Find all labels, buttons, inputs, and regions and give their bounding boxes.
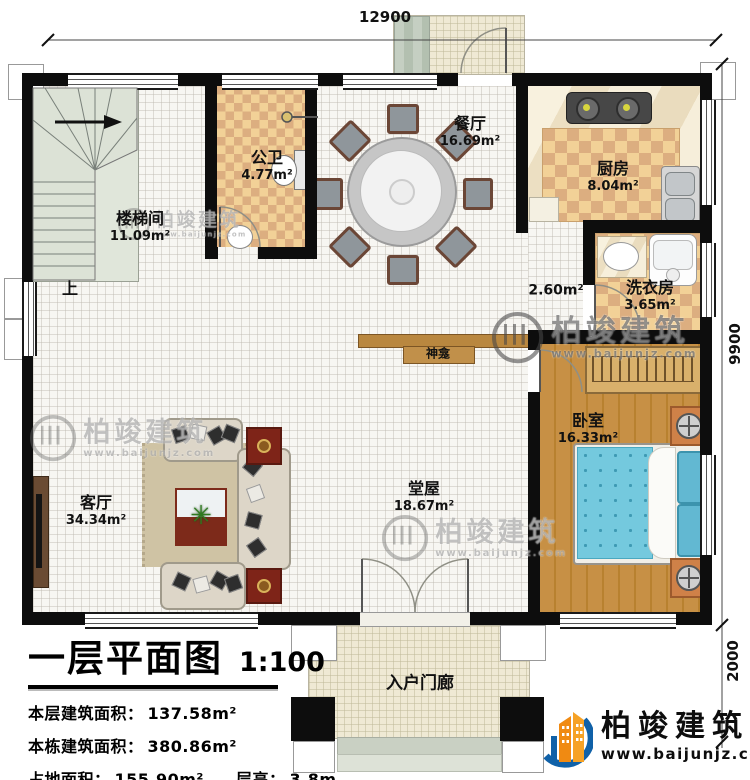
room-label-hall: 堂屋18.67m² <box>394 479 454 515</box>
wall <box>676 612 712 625</box>
dining-chair <box>387 104 419 134</box>
brand-logo: 柏竣建筑 www.baijunjz.com <box>537 700 750 772</box>
wall <box>528 330 540 350</box>
dimension-side: 9900 <box>726 314 744 374</box>
stove-burner-dot <box>583 104 590 111</box>
dining-chair <box>313 178 343 210</box>
footprint-line: 占地面积：155.90m² 层高：3.8m <box>28 766 337 780</box>
brand-logo-icon <box>537 700 593 772</box>
dimension-top: 12900 <box>350 8 420 26</box>
floor-area-line: 本层建筑面积：137.58m² <box>28 700 337 724</box>
porch-pilaster <box>500 625 546 661</box>
wall <box>512 73 712 86</box>
side-table-top <box>246 427 282 465</box>
wall <box>318 73 343 86</box>
wall <box>528 392 540 612</box>
floor-plan-page: ✳ <box>0 0 750 780</box>
wardrobe-hangers <box>592 356 694 382</box>
window <box>343 73 437 90</box>
sofa-right <box>237 448 291 570</box>
vestibule-floor <box>528 220 583 330</box>
brand-name: 柏竣建筑 <box>601 710 750 743</box>
washing-machine-lid <box>653 240 693 270</box>
bed-mattress <box>577 447 653 559</box>
wall <box>470 612 560 625</box>
room-label-vestibule: 2.60m² <box>528 282 583 300</box>
wall <box>205 86 217 259</box>
dimension-porch: 2000 <box>724 631 742 691</box>
porch-step-2 <box>337 754 502 772</box>
wall <box>700 73 712 100</box>
room-label-dining: 餐厅16.69m² <box>440 114 500 150</box>
laundry-sink <box>603 242 639 271</box>
bathroom-sink <box>227 225 253 249</box>
room-label-bedroom: 卧室16.33m² <box>558 411 618 447</box>
bed-sheet <box>648 447 676 559</box>
wall <box>528 330 712 344</box>
stairs-up-label: 上 <box>62 279 78 299</box>
window <box>68 73 178 90</box>
window <box>560 612 676 629</box>
kitchen-appliance <box>529 197 559 222</box>
title-underline <box>28 685 278 691</box>
kitchen-sink-basin <box>665 172 695 196</box>
plant-icon: ✳ <box>190 501 212 531</box>
kitchen-sink-basin <box>665 198 695 222</box>
room-label-porch: 入户门廊 <box>386 673 454 694</box>
room-label-bathroom: 公卫4.77m² <box>241 148 292 184</box>
wall <box>178 73 222 86</box>
sofa-bottom <box>160 562 246 610</box>
window <box>85 612 258 629</box>
wall <box>22 612 85 625</box>
wall <box>258 247 317 259</box>
window <box>222 73 318 90</box>
room-label-laundry: 洗衣房3.65m² <box>624 278 675 314</box>
coffee-table: ✳ <box>175 488 227 546</box>
room-label-living: 客厅34.34m² <box>66 493 126 529</box>
wall <box>437 73 458 86</box>
wall <box>258 612 360 625</box>
wall <box>22 73 33 282</box>
wall <box>305 86 317 259</box>
wall <box>516 86 528 233</box>
stairs <box>33 88 139 282</box>
plan-scale: 1:100 <box>239 647 325 678</box>
stove-burner-dot <box>623 104 630 111</box>
tv-screen <box>36 494 42 568</box>
title-block: 一层平面图 1:100 本层建筑面积：137.58m² 本栋建筑面积：380.8… <box>28 628 337 780</box>
window <box>700 100 716 205</box>
sofa-top <box>163 418 243 462</box>
dining-table-center <box>389 179 415 205</box>
plan-title: 一层平面图 <box>28 628 223 682</box>
room-label-kitchen: 厨房8.04m² <box>587 159 638 195</box>
window <box>22 282 37 356</box>
hall-door-sill <box>360 612 470 627</box>
window <box>700 243 716 317</box>
building-area-line: 本栋建筑面积：380.86m² <box>28 733 337 757</box>
window <box>700 455 716 555</box>
room-label-stairwell: 楼梯间11.09m² <box>110 209 170 245</box>
side-table-bottom <box>246 568 282 604</box>
brand-url: www.baijunjz.com <box>601 745 750 763</box>
dining-chair <box>463 178 493 210</box>
wall <box>205 247 218 259</box>
wall <box>583 233 595 285</box>
wall <box>583 220 712 233</box>
dining-chair <box>387 255 419 285</box>
shrine-label: 神龛 <box>426 347 450 362</box>
wall <box>22 356 33 625</box>
